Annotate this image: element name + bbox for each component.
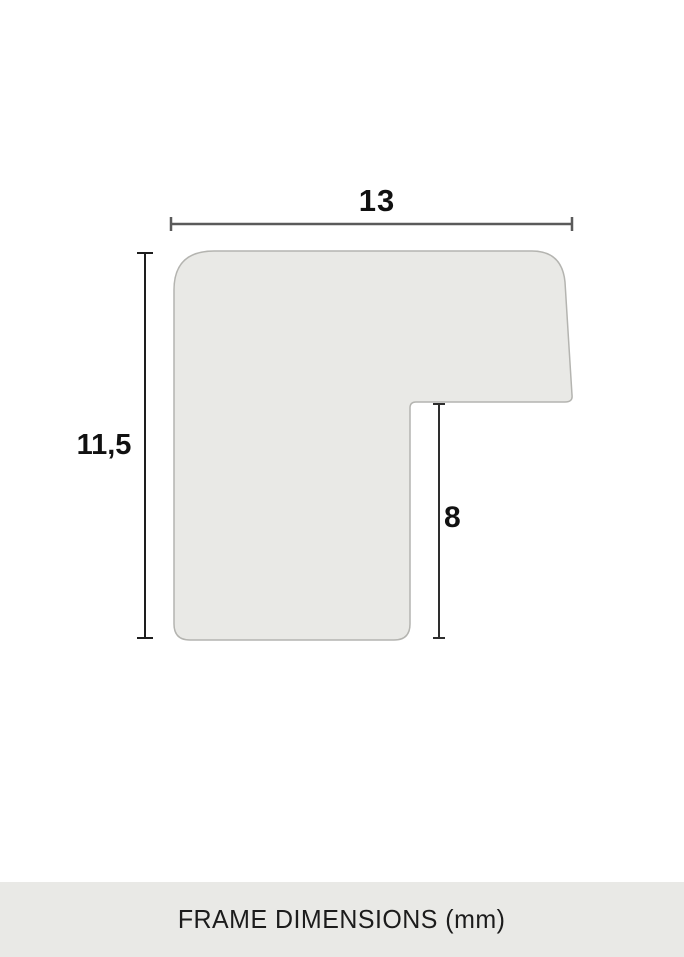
width-dimension-label: 13	[337, 185, 417, 216]
frame-profile-shape	[174, 251, 572, 640]
footer-bar: FRAME DIMENSIONS (mm)	[0, 882, 684, 957]
footer-title: FRAME DIMENSIONS (mm)	[178, 904, 506, 935]
depth-dimension-label: 8	[444, 503, 476, 533]
frame-dimensions-diagram: 13 11,5 8 FRAME DIMENSIONS (mm)	[0, 0, 684, 957]
width-dimension-line	[171, 217, 572, 231]
height-dimension-label: 11,5	[66, 431, 142, 460]
